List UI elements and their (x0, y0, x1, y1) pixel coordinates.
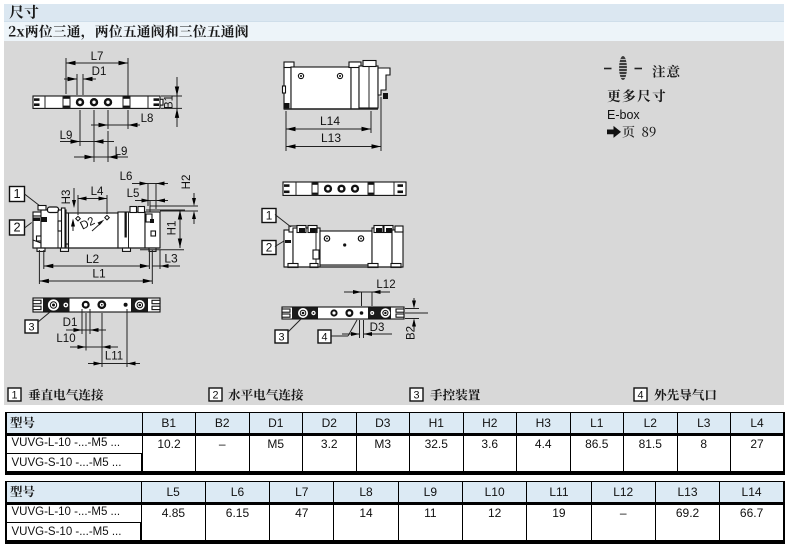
svg-text:L10: L10 (56, 333, 75, 345)
svg-text:L13: L13 (321, 131, 341, 145)
svg-text:1: 1 (266, 209, 273, 223)
svg-text:1: 1 (13, 186, 20, 201)
svg-text:2: 2 (13, 220, 20, 235)
svg-text:D1: D1 (63, 317, 78, 329)
svg-text:L14: L14 (320, 114, 340, 128)
svg-text:2: 2 (212, 390, 218, 402)
svg-text:H2: H2 (181, 175, 193, 190)
svg-text:L12: L12 (376, 279, 395, 291)
svg-text:E-box: E-box (607, 108, 640, 122)
svg-text:D3: D3 (370, 322, 385, 334)
svg-text:B2: B2 (406, 326, 418, 340)
svg-text:4: 4 (321, 332, 327, 344)
svg-text:B1: B1 (164, 95, 176, 109)
svg-text:L6: L6 (120, 171, 133, 183)
svg-text:1: 1 (11, 390, 17, 402)
svg-text:2: 2 (266, 241, 273, 255)
svg-text:H3: H3 (61, 190, 73, 205)
svg-text:L5: L5 (127, 188, 140, 200)
svg-text:L1: L1 (92, 267, 106, 281)
svg-text:L3: L3 (164, 252, 178, 266)
svg-text:L2: L2 (86, 252, 100, 266)
svg-text:H1: H1 (167, 221, 179, 236)
svg-text:L9: L9 (115, 146, 128, 158)
svg-text:L9: L9 (60, 130, 73, 142)
svg-text:3: 3 (413, 390, 419, 402)
svg-text:3: 3 (278, 332, 284, 344)
svg-text:D1: D1 (92, 66, 107, 78)
svg-text:L4: L4 (91, 186, 104, 198)
svg-text:L7: L7 (91, 51, 104, 63)
svg-text:L8: L8 (141, 113, 154, 125)
svg-text:L11: L11 (105, 351, 123, 363)
svg-text:4: 4 (637, 390, 643, 402)
svg-text:3: 3 (28, 322, 34, 334)
